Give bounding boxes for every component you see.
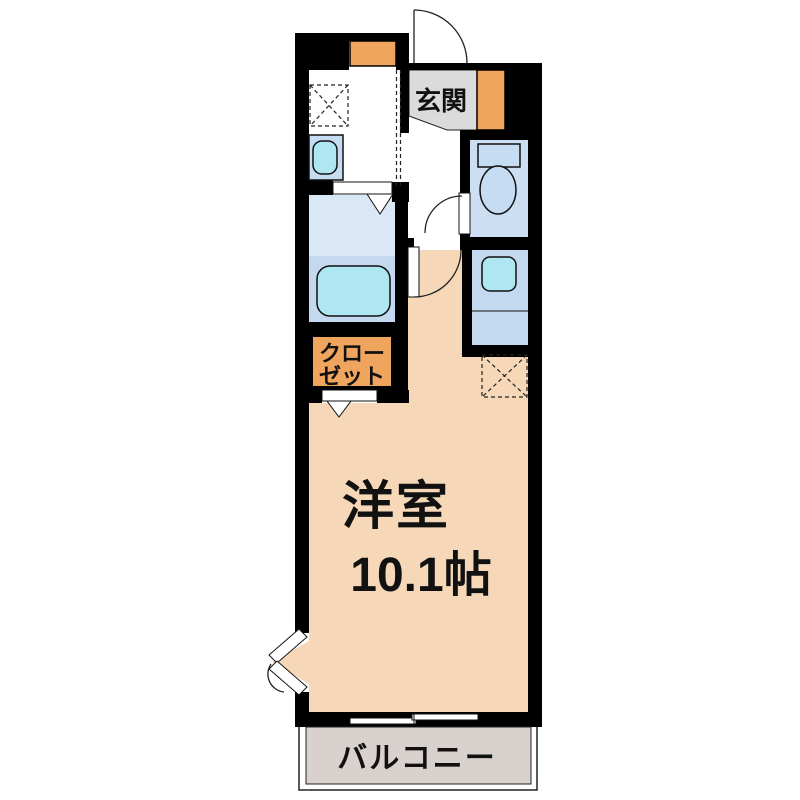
shoe-cabinet xyxy=(477,70,505,130)
kitchen-counter-block xyxy=(350,41,396,66)
main-room-size: 10.1帖 xyxy=(350,549,491,602)
closet-label-line2: ゼット xyxy=(319,364,385,389)
kitchen-sink xyxy=(313,141,337,174)
floorplan-svg: 玄関 クロー ゼット 洋室 10.1帖 バルコニー xyxy=(0,0,800,800)
floorplan-canvas: 玄関 クロー ゼット 洋室 10.1帖 バルコニー xyxy=(0,0,800,800)
toilet xyxy=(478,144,520,214)
main-room-name: 洋室 xyxy=(342,478,450,536)
bathtub xyxy=(317,266,390,316)
kitchen-partition-dotted xyxy=(397,70,401,186)
balcony-label: バルコニー xyxy=(337,742,496,775)
closet-label-line1: クロー xyxy=(319,341,385,366)
entrance-label: 玄関 xyxy=(415,86,467,116)
entrance-door xyxy=(414,10,467,63)
washer-pan xyxy=(482,257,516,291)
